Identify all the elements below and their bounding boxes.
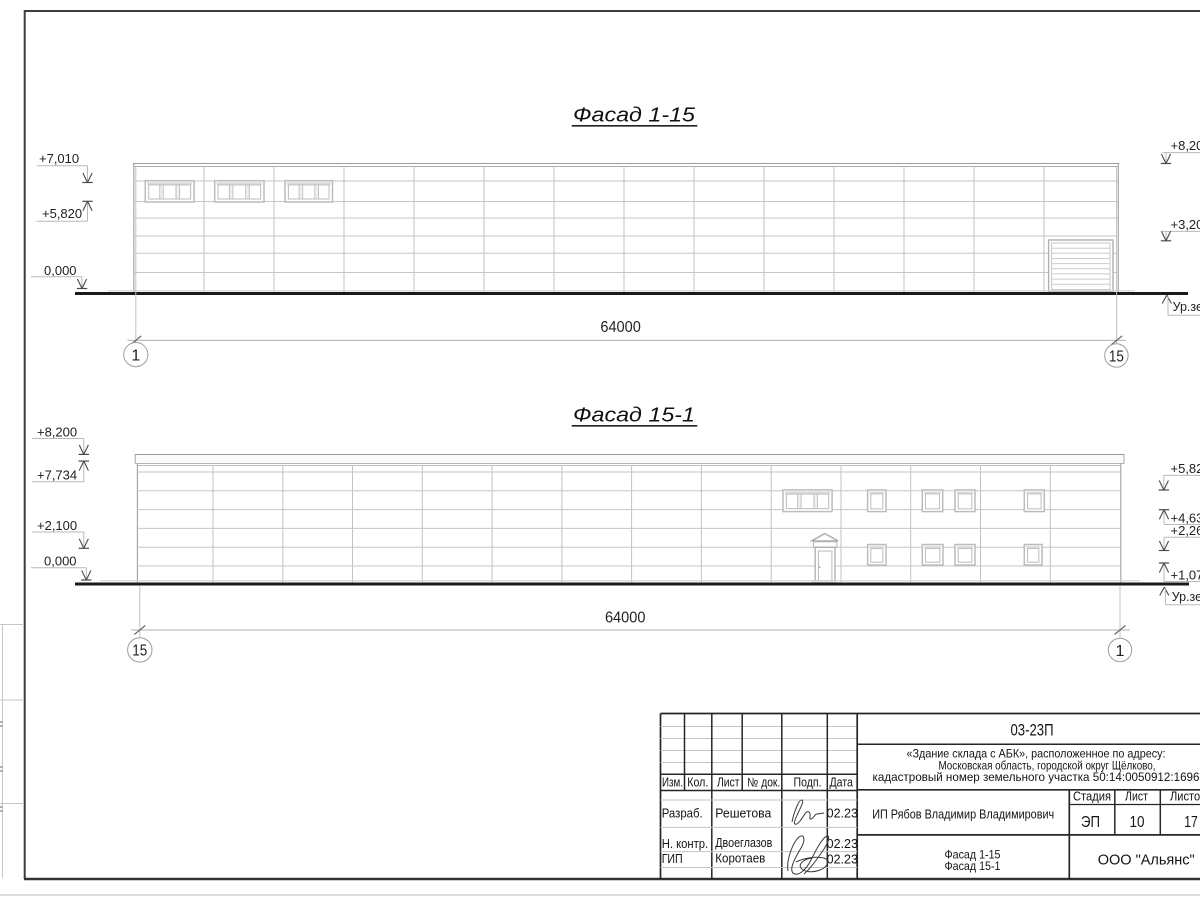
svg-text:Разраб.: Разраб. — [662, 807, 703, 821]
svg-text:Н. контр.: Н. контр. — [662, 837, 709, 851]
svg-text:+1,070: +1,070 — [1171, 568, 1200, 583]
svg-text:Подп.: Подп. — [794, 776, 822, 790]
svg-text:+8,200: +8,200 — [37, 425, 77, 440]
svg-text:02.23: 02.23 — [827, 852, 858, 866]
svg-text:Фасад 15-1: Фасад 15-1 — [573, 405, 695, 427]
svg-text:Изм.: Изм. — [662, 776, 683, 790]
svg-text:кадастровый номер земельного у: кадастровый номер земельного участка 50:… — [873, 770, 1200, 784]
svg-text:+8,200: +8,200 — [1171, 138, 1200, 153]
svg-text:Кол.: Кол. — [687, 776, 708, 790]
svg-text:Двоеглазов: Двоеглазов — [715, 836, 772, 850]
svg-text:15: 15 — [1109, 348, 1124, 365]
svg-text:1: 1 — [1116, 643, 1125, 660]
svg-text:Лист: Лист — [1125, 790, 1148, 804]
svg-text:02.23: 02.23 — [827, 807, 858, 821]
svg-text:№ док.: № док. — [747, 776, 780, 790]
svg-text:0,000: 0,000 — [44, 263, 77, 278]
svg-text:+2,100: +2,100 — [37, 518, 77, 533]
svg-text:ГИП: ГИП — [662, 852, 683, 866]
svg-text:ЭП: ЭП — [1081, 814, 1100, 831]
svg-text:15: 15 — [132, 643, 147, 660]
svg-text:03-23П: 03-23П — [1011, 722, 1054, 740]
svg-text:02.23: 02.23 — [827, 837, 858, 851]
svg-text:+7,010: +7,010 — [39, 151, 79, 166]
svg-text:17: 17 — [1184, 814, 1198, 831]
svg-text:Фасад 1-15: Фасад 1-15 — [573, 105, 696, 127]
svg-text:ООО "Альянс": ООО "Альянс" — [1098, 852, 1195, 869]
svg-text:10: 10 — [1130, 814, 1145, 831]
svg-text:Дата: Дата — [829, 776, 853, 790]
svg-text:+5,820: +5,820 — [42, 206, 82, 221]
svg-text:Ур.земли: Ур.земли — [1173, 300, 1200, 314]
svg-text:+7,734: +7,734 — [37, 468, 77, 483]
svg-text:Коротаев: Коротаев — [715, 851, 765, 865]
svg-text:Решетова: Решетова — [715, 807, 771, 821]
svg-text:Стадия: Стадия — [1073, 790, 1111, 804]
svg-text:Лист: Лист — [717, 776, 740, 790]
svg-text:Листов: Листов — [1170, 790, 1200, 804]
svg-text:64000: 64000 — [600, 319, 641, 336]
svg-text:Фасад 15-1: Фасад 15-1 — [945, 859, 1001, 873]
svg-text:1: 1 — [131, 347, 140, 364]
svg-text:+2,260: +2,260 — [1171, 523, 1200, 538]
svg-text:ИП Рябов Владимир Владимирович: ИП Рябов Владимир Владимирович — [872, 807, 1054, 822]
svg-text:+5,820: +5,820 — [1171, 461, 1200, 476]
svg-text:64000: 64000 — [605, 609, 646, 626]
svg-text:+3,200: +3,200 — [1171, 217, 1200, 232]
svg-text:0,000: 0,000 — [44, 554, 77, 569]
svg-text:Ур.земли: Ур.земли — [1172, 590, 1200, 604]
